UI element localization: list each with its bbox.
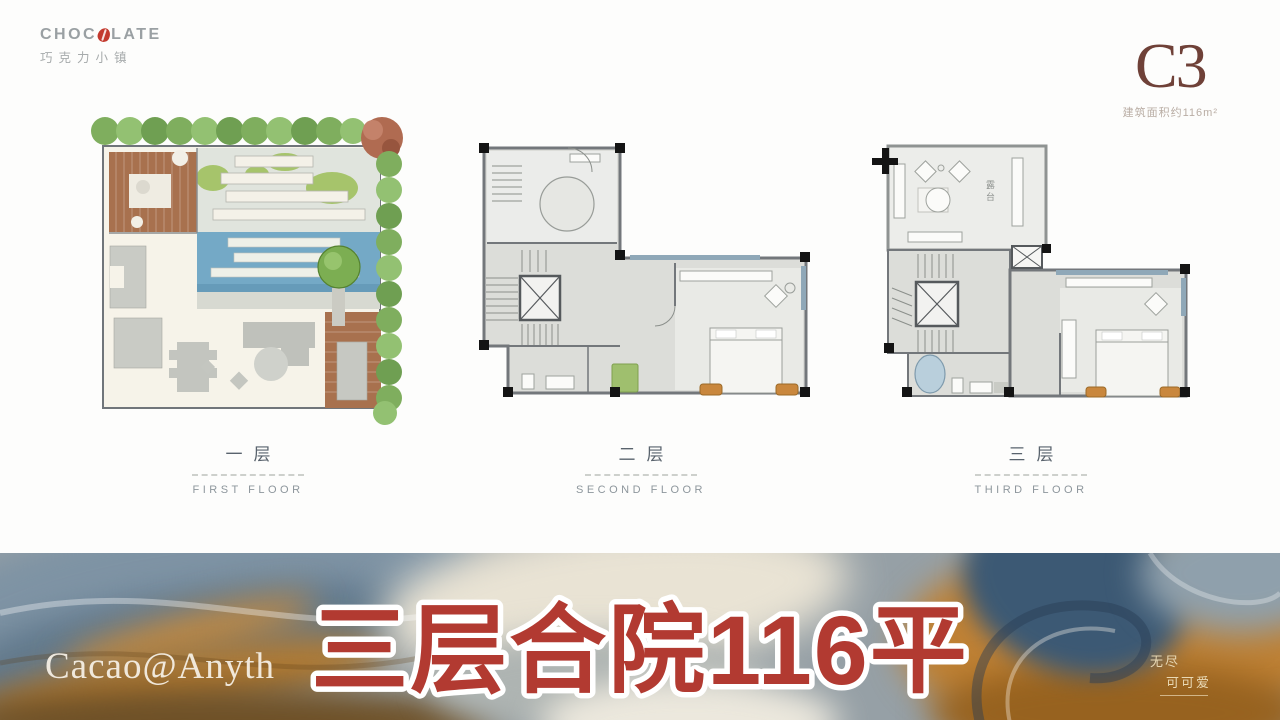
brand-suffix: LATE xyxy=(111,26,162,44)
third-floor-plan: 露台 xyxy=(860,138,1190,408)
second-floor-caption: 二层 SECOND FLOOR xyxy=(531,440,751,496)
caption-zh: 二层 xyxy=(531,440,751,465)
stool xyxy=(1160,387,1180,397)
stool xyxy=(776,384,798,395)
walkway xyxy=(197,292,380,309)
third-floor-plan-drawing: 露台 xyxy=(860,138,1190,408)
window-strip xyxy=(801,266,806,310)
brand-subtitle: 巧克力小镇 xyxy=(40,47,162,66)
caption-en: THIRD FLOOR xyxy=(921,484,1141,496)
presentation-slide: CHOC LATE 巧克力小镇 C3 建筑面积约116m² xyxy=(0,0,1280,720)
unit-area-note: 建筑面积约116m² xyxy=(1123,104,1218,120)
first-floor-plan-drawing xyxy=(85,116,420,426)
window-strip xyxy=(1056,270,1168,275)
caption-divider xyxy=(585,474,697,476)
toilet xyxy=(952,378,963,393)
round-tub xyxy=(540,177,594,231)
caption-zh: 三层 xyxy=(921,440,1141,465)
desk xyxy=(1062,320,1076,378)
cocoa-bean-icon xyxy=(96,26,113,44)
sink xyxy=(970,382,992,393)
marble-banner: Cacao@Anyth 三层合院116平 无尽 可可爱 xyxy=(0,553,1280,720)
headline-text: 三层合院116平 xyxy=(311,596,969,705)
third-floor-caption: 三层 THIRD FLOOR xyxy=(921,440,1141,496)
toilet xyxy=(522,374,534,389)
top-hedge xyxy=(91,117,366,145)
slogan: 无尽 可可爱 xyxy=(1150,651,1211,696)
caption-divider xyxy=(975,474,1087,476)
second-floor-plan xyxy=(470,138,815,408)
stool xyxy=(700,384,722,395)
caption-en: FIRST FLOOR xyxy=(138,484,358,496)
unit-model: C3 xyxy=(1123,34,1218,98)
watermark-text: Cacao@Anyth xyxy=(45,645,275,688)
elevator xyxy=(916,282,958,326)
slogan-underline xyxy=(1160,695,1208,696)
autumn-tree xyxy=(361,117,403,159)
unit-badge: C3 建筑面积约116m² xyxy=(1123,34,1218,120)
wood-deck-top-left xyxy=(109,150,197,232)
caption-en: SECOND FLOOR xyxy=(531,484,751,496)
sink xyxy=(546,376,574,389)
wardrobe xyxy=(680,271,772,281)
bed xyxy=(1096,330,1168,396)
first-floor-plan xyxy=(85,116,420,426)
elevator xyxy=(520,276,560,320)
first-floor-caption: 一层 FIRST FLOOR xyxy=(138,440,358,496)
second-floor-plan-drawing xyxy=(470,138,815,408)
slogan-line1: 无尽 xyxy=(1150,651,1211,670)
brand-logo: CHOC LATE 巧克力小镇 xyxy=(40,26,162,66)
brand-prefix: CHOC xyxy=(40,26,97,44)
bed xyxy=(710,328,782,393)
wardrobe xyxy=(1066,278,1152,287)
bathtub xyxy=(915,355,945,393)
pool-edge xyxy=(197,284,380,292)
banner-headline: 三层合院116平 xyxy=(250,581,1030,713)
brand-wordmark: CHOC LATE xyxy=(40,26,162,44)
terrace-label: 露台 xyxy=(985,180,995,204)
window-strip xyxy=(1181,278,1186,316)
window-strip xyxy=(630,255,760,260)
stool xyxy=(1086,387,1106,397)
wood-deck-bottom-right xyxy=(325,312,381,408)
slogan-line2: 可可爱 xyxy=(1166,672,1211,691)
caption-divider xyxy=(192,474,304,476)
caption-zh: 一层 xyxy=(138,440,358,465)
flue-box xyxy=(1012,246,1042,268)
